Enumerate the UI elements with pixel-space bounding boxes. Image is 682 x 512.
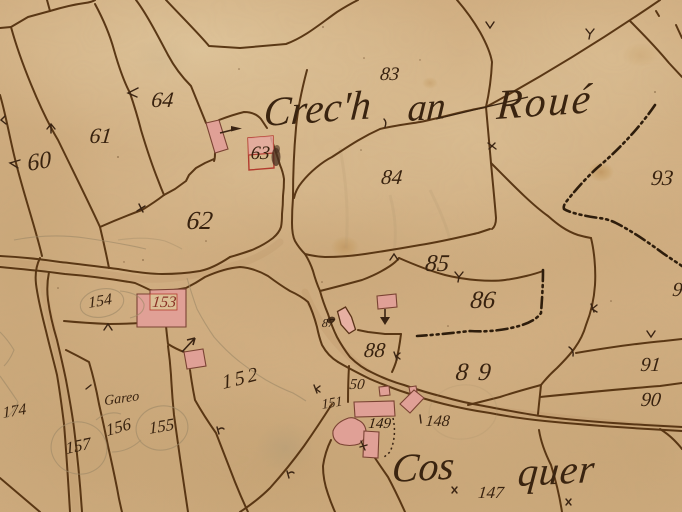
svg-text:50: 50: [349, 377, 366, 393]
svg-text:84: 84: [380, 165, 404, 189]
svg-text:63: 63: [250, 143, 271, 164]
svg-text:89: 89: [454, 359, 502, 386]
svg-text:60: 60: [27, 147, 52, 177]
svg-text:85: 85: [424, 251, 451, 277]
svg-text:93: 93: [650, 165, 675, 190]
svg-text:64: 64: [150, 87, 175, 112]
svg-text:91: 91: [639, 354, 661, 376]
svg-text:83: 83: [379, 64, 400, 85]
svg-text:an: an: [406, 85, 447, 130]
svg-text:147: 147: [477, 483, 506, 502]
svg-text:90: 90: [640, 389, 662, 411]
svg-text:Roué: Roué: [494, 75, 594, 129]
svg-text:153: 153: [151, 294, 177, 311]
svg-text:88: 88: [363, 338, 387, 362]
svg-text:quer: quer: [516, 446, 597, 495]
svg-text:149: 149: [368, 416, 393, 432]
svg-text:61: 61: [88, 123, 113, 148]
svg-text:62: 62: [185, 206, 214, 235]
svg-text:Crec'h: Crec'h: [262, 81, 372, 135]
svg-text:86: 86: [469, 287, 497, 314]
svg-text:9: 9: [671, 279, 682, 301]
svg-text:Cos: Cos: [390, 443, 456, 491]
